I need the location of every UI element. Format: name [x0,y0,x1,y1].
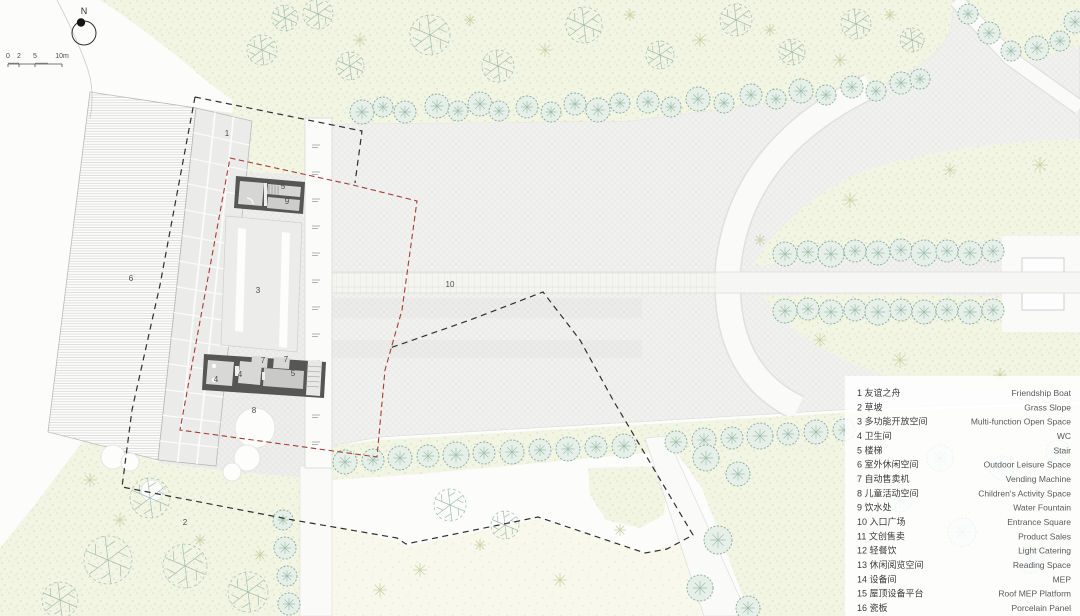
tree-icon [766,89,786,109]
tree-icon [687,575,713,601]
tree-icon [865,299,891,325]
shrub-icon [474,539,486,551]
tree-icon [936,240,958,262]
shrub-icon [83,473,97,487]
legend-item-en: Porcelain Panel [1011,603,1071,613]
scale-label: 10m [55,53,69,60]
tree-icon [797,241,819,263]
legend-item-en: Multi-function Open Space [971,417,1071,427]
axis-brick-paving [332,272,717,293]
tree-icon [958,4,978,24]
tree-icon [958,300,982,324]
scale-label: 0 [6,53,10,60]
tree-icon [797,298,819,320]
shrub-icon [884,9,896,21]
legend-item-zh: 11 文创售卖 [857,530,905,541]
shrub-icon [614,524,626,536]
shrub-icon [538,43,552,57]
scale-label: 2 [17,53,21,60]
tree-icon [866,81,886,101]
tree-icon [911,240,937,266]
tree-icon [804,420,828,444]
legend-item-en: Roof MEP Platform [998,589,1071,599]
plan-label-entrance-square: 10 [446,280,455,289]
shrub-icon [1032,157,1048,173]
shrub-icon [892,352,908,368]
tree-icon [425,94,449,118]
legend-item-zh: 5 楼梯 [857,444,883,455]
site-plan-page: 12344556778910 N 02510m 1 友谊之舟Friendship… [0,0,1080,616]
tree-icon [1001,41,1021,61]
legend-item-zh: 10 入口广场 [857,516,906,527]
shrub-icon [413,563,427,577]
tree-icon [586,98,610,122]
legend-item-zh: 4 卫生间 [857,430,892,441]
legend-item-zh: 14 设备间 [857,573,897,584]
plan-label-stair-lower: 5 [291,369,296,378]
south-path [300,466,332,616]
tree-icon [818,241,844,267]
tree-icon [373,97,393,117]
tree-icon [704,526,732,554]
plan-label-water-fountain: 9 [285,197,290,206]
tree-icon [819,300,843,324]
plan-label-multi-function: 3 [256,286,261,295]
plan-label-outdoor-leisure: 6 [129,274,134,283]
tree-icon [693,445,719,471]
tree-icon [773,299,797,323]
shrub-icon [764,24,776,36]
tree-icon [448,101,468,121]
tree-icon [844,240,866,262]
tree-icon [350,100,374,124]
shrub-icon [693,33,707,47]
tree-icon [912,300,936,324]
tree-icon [516,96,538,118]
tree-icon [394,101,416,123]
tree-icon [866,241,890,265]
legend-item-en: Reading Space [1013,560,1071,570]
shrub-icon [754,234,766,246]
tree-icon [890,72,912,94]
tree-icon [473,442,495,464]
tree-icon [936,299,958,321]
tree-icon [789,79,813,103]
legend-item-zh: 1 友谊之舟 [857,387,901,398]
tree-icon [910,69,930,89]
tree-icon [500,440,524,464]
tree-icon [890,239,912,261]
legend-item-en: Outdoor Leisure Space [984,460,1072,470]
tree-icon [978,22,1000,44]
tree-icon [844,299,866,321]
legend-item-zh: 7 自动售卖机 [857,473,910,484]
plan-label-vending-2: 7 [284,355,289,364]
legend-item-zh: 12 轻餐饮 [857,545,897,556]
tree-icon [637,91,659,113]
tree-icon [747,423,773,449]
legend-item-en: Entrance Square [1007,517,1071,527]
tree-icon [721,427,743,449]
legend-item-zh: 13 休闲阅览空间 [857,559,924,570]
tree-icon [777,423,799,445]
shrub-icon [194,534,206,546]
tree-icon [612,434,636,458]
tree-icon [278,593,300,615]
tree-icon [585,436,607,458]
tree-icon [388,446,412,470]
tree-icon [489,101,509,121]
tree-icon [564,93,586,115]
tree-icon [661,97,681,117]
tree-icon [541,102,561,122]
tree-icon [816,85,836,105]
plan-label-grass-slope: 2 [183,518,188,527]
shrub-icon [943,163,957,177]
tree-icon [665,431,687,453]
shrub-icon [553,573,567,587]
legend-item-en: MEP [1053,574,1072,584]
tree-icon [686,87,710,111]
site-plan-drawing: 12344556778910 N 02510m 1 友谊之舟Friendship… [0,0,1080,616]
west-walkway-strip [305,118,332,468]
tree-icon [274,537,296,559]
legend-item-zh: 2 草坡 [857,401,883,412]
legend-item-en: Water Fountain [1013,503,1071,513]
tree-icon [958,241,982,265]
plan-label-wc-left: 4 [214,375,219,384]
tree-icon [468,92,492,116]
legend-item-zh: 3 多功能开放空间 [857,416,928,427]
plan-label-vending-1: 7 [261,356,266,365]
shrub-icon [353,33,367,47]
tree-icon [841,76,863,98]
legend: 1 友谊之舟Friendship Boat2 草坡Grass Slope3 多功… [845,376,1080,616]
paving-band [332,340,642,358]
shrub-icon [464,14,476,26]
tree-icon [1050,31,1070,51]
tree-icon [277,566,297,586]
tree-icon [443,442,469,468]
legend-item-en: Friendship Boat [1011,388,1071,398]
north-label: N [81,6,88,16]
tree-icon [982,299,1004,321]
tree-icon [556,437,580,461]
legend-item-zh: 15 屋顶设备平台 [857,588,924,599]
north-service-building [234,176,305,214]
tree-icon [610,93,630,113]
tree-icon [736,596,760,616]
legend-item-zh: 16 瓷板 [857,602,888,613]
paving-band [332,298,642,318]
tree-icon [417,445,439,467]
legend-item-en: Vending Machine [1006,474,1071,484]
shrub-icon [833,53,847,67]
tree-icon [529,439,551,461]
plan-label-friendship-boat: 1 [225,129,230,138]
tree-icon [890,299,912,321]
shrub-icon [624,9,636,21]
tree-icon [740,84,762,106]
plan-label-children-space: 8 [252,406,257,415]
shrub-icon [842,192,858,208]
legend-item-en: Children's Activity Space [978,488,1071,498]
tree-icon [714,93,734,113]
shrub-icon [113,513,127,527]
legend-item-en: Light Catering [1018,546,1071,556]
tree-icon [362,449,384,471]
shrub-icon [373,583,387,597]
legend-item-en: WC [1057,431,1071,441]
north-dot [77,18,85,26]
plan-label-stair-top: 5 [281,182,286,191]
legend-item-en: Grass Slope [1024,402,1071,412]
legend-item-en: Stair [1054,445,1072,455]
tree-icon [333,450,357,474]
tree-icon [726,462,750,486]
tree-icon [1025,36,1049,60]
tree-icon [982,240,1004,262]
plan-label-wc-right: 4 [238,370,243,379]
shrub-icon [813,333,827,347]
legend-item-zh: 6 室外休闲空间 [857,459,919,470]
legend-item-en: Product Sales [1018,531,1071,541]
scale-label: 5 [33,53,37,60]
tree-icon [773,242,797,266]
legend-item-zh: 8 儿童活动空间 [857,487,919,498]
legend-item-zh: 9 饮水处 [857,502,892,513]
